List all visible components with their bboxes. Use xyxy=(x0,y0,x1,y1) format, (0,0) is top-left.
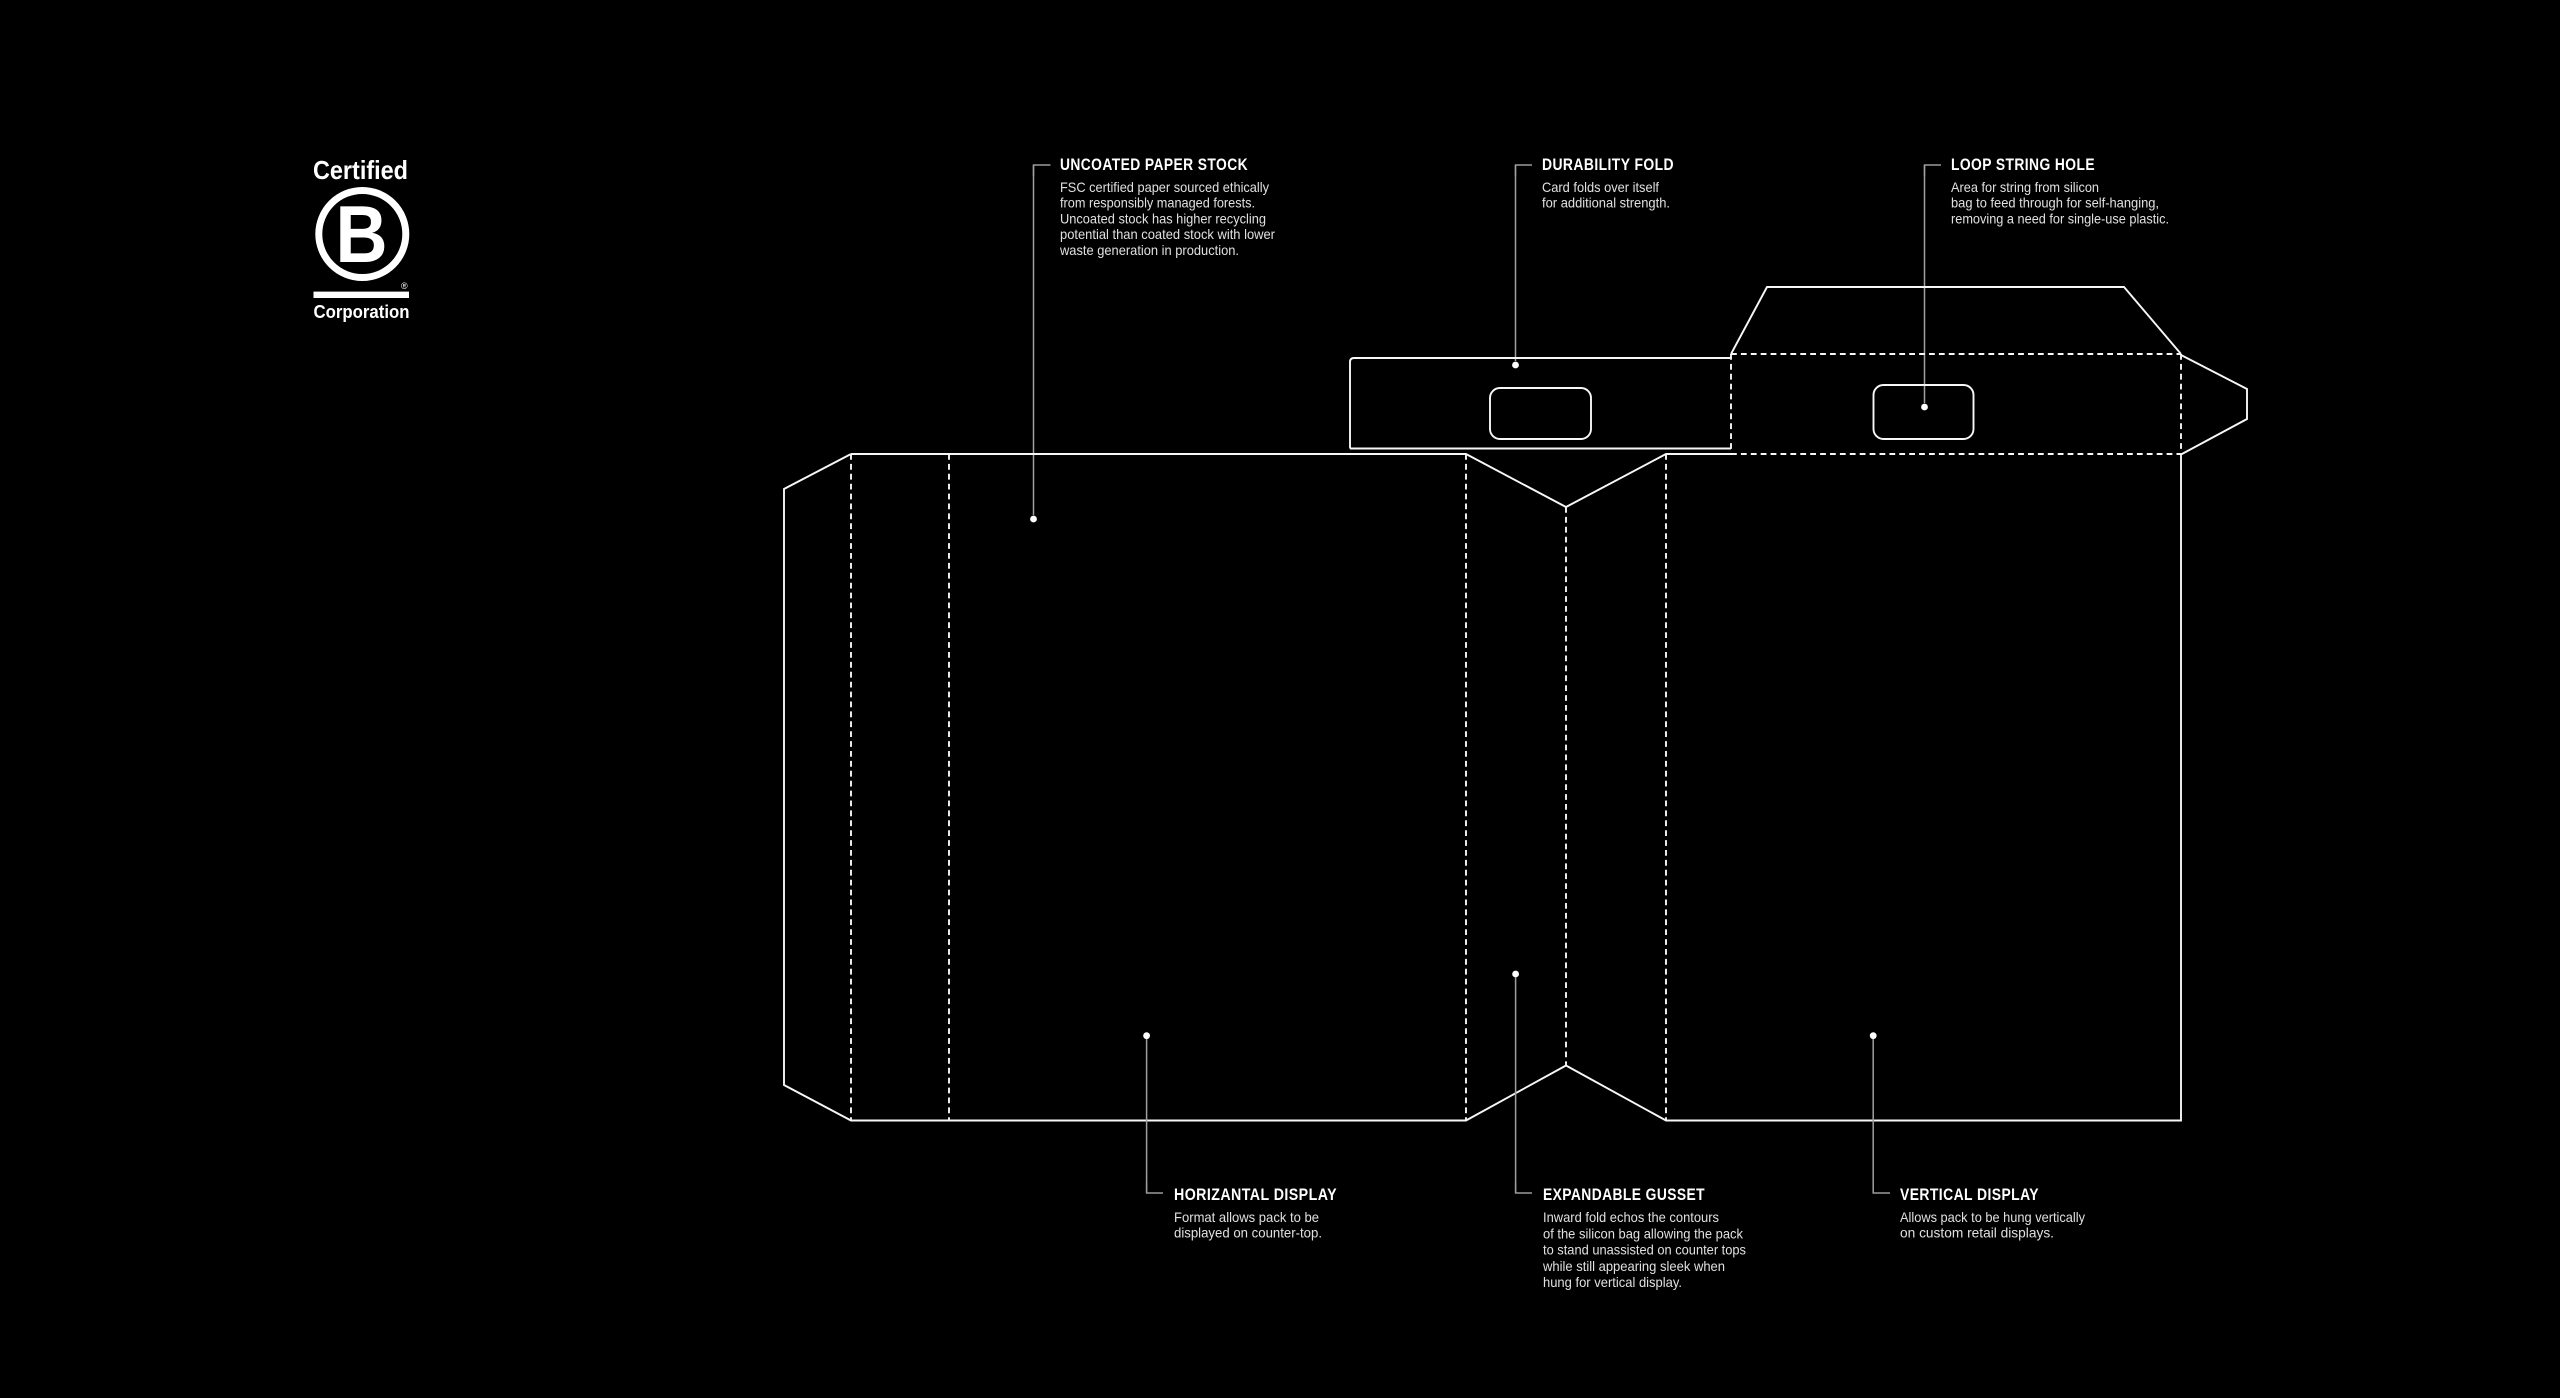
svg-text:of the silicon bag allowing th: of the silicon bag allowing the pack xyxy=(1543,1225,1744,1241)
svg-text:on custom retail displays.: on custom retail displays. xyxy=(1900,1225,2054,1241)
svg-text:to stand unassisted on counter: to stand unassisted on counter tops xyxy=(1543,1242,1746,1258)
svg-text:Card folds over itself: Card folds over itself xyxy=(1542,179,1659,195)
svg-text:Allows pack to be hung vertica: Allows pack to be hung vertically xyxy=(1900,1209,2085,1225)
svg-text:from responsibly managed fores: from responsibly managed forests. xyxy=(1060,195,1255,211)
svg-text:FSC certified paper sourced et: FSC certified paper sourced ethically xyxy=(1060,179,1269,195)
svg-text:EXPANDABLE GUSSET: EXPANDABLE GUSSET xyxy=(1543,1186,1705,1204)
svg-text:®: ® xyxy=(401,281,408,291)
svg-text:Corporation: Corporation xyxy=(314,301,410,322)
svg-text:Format allows pack to be: Format allows pack to be xyxy=(1174,1209,1319,1225)
svg-text:Uncoated stock has higher recy: Uncoated stock has higher recycling xyxy=(1060,210,1266,226)
svg-text:for additional strength.: for additional strength. xyxy=(1542,195,1670,211)
svg-text:DURABILITY FOLD: DURABILITY FOLD xyxy=(1542,156,1674,174)
svg-text:B: B xyxy=(335,190,387,280)
svg-text:UNCOATED PAPER STOCK: UNCOATED PAPER STOCK xyxy=(1060,156,1248,174)
svg-text:Certified: Certified xyxy=(313,155,408,185)
svg-text:HORIZANTAL DISPLAY: HORIZANTAL DISPLAY xyxy=(1174,1186,1337,1204)
svg-text:potential than coated stock wi: potential than coated stock with lower xyxy=(1060,226,1275,242)
svg-text:LOOP STRING HOLE: LOOP STRING HOLE xyxy=(1951,156,2095,174)
svg-text:VERTICAL DISPLAY: VERTICAL DISPLAY xyxy=(1900,1186,2039,1204)
svg-text:while still appearing sleek wh: while still appearing sleek when xyxy=(1542,1258,1725,1274)
svg-text:displayed on counter-top.: displayed on counter-top. xyxy=(1174,1225,1322,1241)
svg-text:Area for string from silicon: Area for string from silicon xyxy=(1951,179,2099,195)
svg-text:bag to feed through for self-h: bag to feed through for self-hanging, xyxy=(1951,195,2159,211)
svg-text:hung for vertical display.: hung for vertical display. xyxy=(1543,1274,1682,1290)
svg-text:Inward fold echos the contours: Inward fold echos the contours xyxy=(1543,1209,1719,1225)
svg-text:removing a need for single-use: removing a need for single-use plastic. xyxy=(1951,210,2169,226)
svg-text:waste generation in production: waste generation in production. xyxy=(1059,242,1239,258)
